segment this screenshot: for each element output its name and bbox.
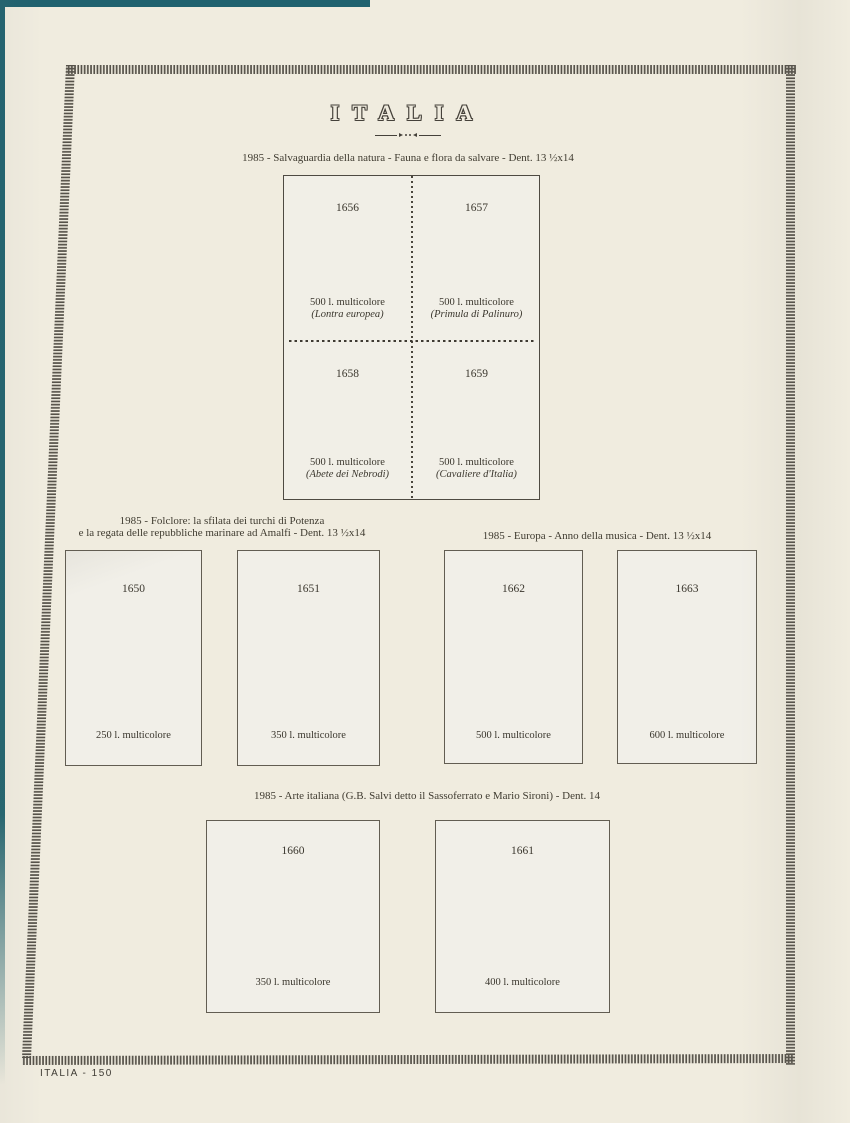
stamp-value: 350 l. multicolore xyxy=(238,730,379,741)
stamp-number: 1657 xyxy=(413,202,540,214)
page-footer-label: ITALIA - 150 xyxy=(40,1068,113,1079)
album-page: ITALIA 1985 - Salvaguardia della natura … xyxy=(0,0,850,1123)
section-heading-natura: 1985 - Salvaguardia della natura - Fauna… xyxy=(83,153,733,165)
page-title: ITALIA xyxy=(58,100,758,126)
stamp-number: 1660 xyxy=(207,845,379,857)
stamp-frame-1661: 1661 400 l. multicolore xyxy=(435,820,610,1013)
stamp-value: 400 l. multicolore xyxy=(436,977,609,988)
stamp-number: 1659 xyxy=(413,368,540,380)
stamp-frame-1650: 1650 250 l. multicolore xyxy=(65,550,202,766)
heading-line: 1985 - Arte italiana (G.B. Salvi detto i… xyxy=(254,790,600,802)
stamp-subtitle: (Primula di Palinuro) xyxy=(413,309,540,321)
stamp-number: 1656 xyxy=(284,202,411,214)
stamp-frame-1660: 1660 350 l. multicolore xyxy=(206,820,380,1013)
stamp-number: 1663 xyxy=(618,583,756,595)
stamp-frame-1663: 1663 600 l. multicolore xyxy=(617,550,757,764)
stamp-frame-1662: 1662 500 l. multicolore xyxy=(444,550,583,764)
heading-line: 1985 - Salvaguardia della natura - Fauna… xyxy=(242,152,574,164)
title-ornament-divider xyxy=(58,131,758,139)
heading-line: 1985 - Europa - Anno della musica - Dent… xyxy=(483,530,712,542)
stamp-subtitle: (Abete dei Nebrodi) xyxy=(284,469,411,481)
stamp-value-caption: 500 l. multicolore (Abete dei Nebrodi) xyxy=(284,457,411,481)
stamp-number: 1650 xyxy=(66,583,201,595)
stamp-cell-1659: 1659 500 l. multicolore (Cavaliere d'Ita… xyxy=(413,342,540,499)
stamp-number: 1661 xyxy=(436,845,609,857)
stamp-block-frame: 1656 500 l. multicolore (Lontra europea)… xyxy=(283,175,540,500)
stamp-value: 500 l. multicolore xyxy=(413,457,540,469)
stamp-number: 1658 xyxy=(284,368,411,380)
stamp-value-caption: 500 l. multicolore (Lontra europea) xyxy=(284,297,411,321)
stamp-value: 600 l. multicolore xyxy=(618,730,756,741)
stamp-cell-1657: 1657 500 l. multicolore (Primula di Pali… xyxy=(413,176,540,339)
stamp-value: 500 l. multicolore xyxy=(284,297,411,309)
stamp-subtitle: (Lontra europea) xyxy=(284,309,411,321)
stamp-value: 500 l. multicolore xyxy=(413,297,540,309)
stamp-value: 500 l. multicolore xyxy=(445,730,582,741)
heading-line: 1985 - Folclore: la sfilata dei turchi d… xyxy=(120,515,325,527)
stamp-value: 250 l. multicolore xyxy=(66,730,201,741)
heading-line: e la regata delle repubbliche marinare a… xyxy=(79,527,366,539)
stamp-number: 1651 xyxy=(238,583,379,595)
stamp-frame-1651: 1651 350 l. multicolore xyxy=(237,550,380,766)
section-heading-arte: 1985 - Arte italiana (G.B. Salvi detto i… xyxy=(102,791,752,803)
stamp-cell-1658: 1658 500 l. multicolore (Abete dei Nebro… xyxy=(284,342,411,499)
stamp-value-caption: 500 l. multicolore (Primula di Palinuro) xyxy=(413,297,540,321)
section-heading-folclore: 1985 - Folclore: la sfilata dei turchi d… xyxy=(55,516,389,539)
stamp-value-caption: 500 l. multicolore (Cavaliere d'Italia) xyxy=(413,457,540,481)
stamp-number: 1662 xyxy=(445,583,582,595)
stamp-subtitle: (Cavaliere d'Italia) xyxy=(413,469,540,481)
stamp-cell-1656: 1656 500 l. multicolore (Lontra europea) xyxy=(284,176,411,339)
section-heading-europa: 1985 - Europa - Anno della musica - Dent… xyxy=(430,531,764,543)
stamp-value: 350 l. multicolore xyxy=(207,977,379,988)
stamp-value: 500 l. multicolore xyxy=(284,457,411,469)
